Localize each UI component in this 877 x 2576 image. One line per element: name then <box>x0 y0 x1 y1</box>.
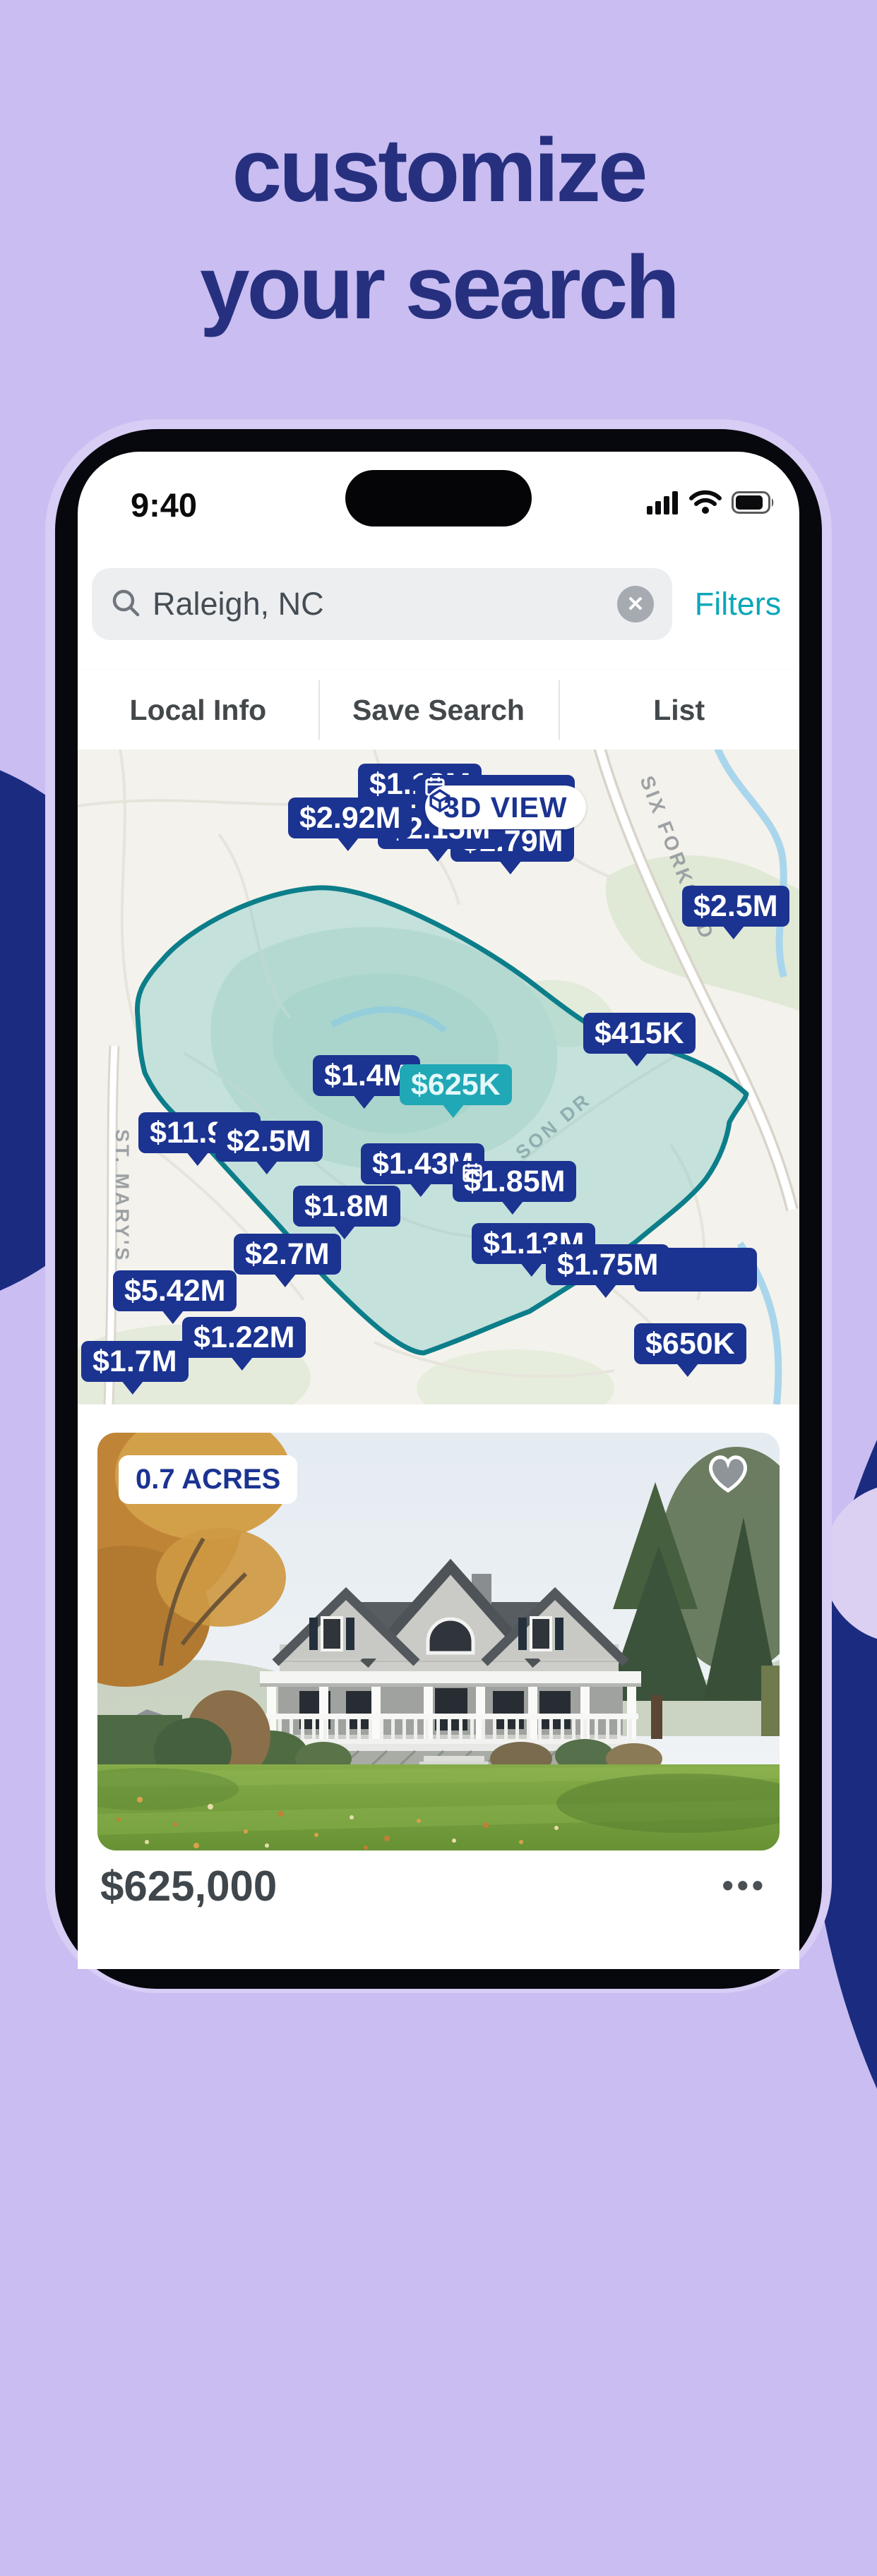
pin-price-label: $2.7M <box>245 1237 330 1272</box>
price-pin[interactable]: $1.7M <box>81 1341 189 1382</box>
pin-price-label: $1.4M <box>324 1059 409 1093</box>
price-pin[interactable]: $2.5M <box>682 886 789 927</box>
pin-price-label: $1.75M <box>557 1248 658 1282</box>
pin-price-label: $415K <box>595 1016 684 1051</box>
search-query-text: Raleigh, NC <box>153 586 617 622</box>
listing-card-photo[interactable]: 0.7 ACRES <box>97 1433 780 1850</box>
clear-search-button[interactable]: ✕ <box>617 586 654 622</box>
status-bar: 9:40 <box>78 452 799 543</box>
favorite-heart-icon[interactable] <box>705 1451 751 1498</box>
search-row: Raleigh, NC ✕ Filters <box>78 565 799 649</box>
phone-screen: 9:40 Raleigh, NC ✕ Filters Local InfoSav… <box>78 452 799 1969</box>
pin-price-label: $5.42M <box>124 1274 225 1308</box>
wifi-icon <box>688 490 722 519</box>
tab-list[interactable]: List <box>559 670 799 750</box>
app-store-screenshot: { "hero": { "title_line1": "customize", … <box>0 0 877 1897</box>
price-pin[interactable]: $1.22M <box>182 1317 306 1358</box>
acres-badge: 0.7 ACRES <box>119 1455 297 1504</box>
search-icon <box>110 587 141 622</box>
listing-price: $625,000 <box>100 1862 277 1910</box>
status-time: 9:40 <box>114 486 213 524</box>
price-pin[interactable]: $2.7M <box>234 1234 341 1275</box>
pin-price-label: $1.8M <box>304 1189 389 1224</box>
map-view[interactable]: SIX FORKS RD ST. MARY'S ST SON DR $1.18M… <box>78 750 799 1404</box>
signal-icon <box>647 490 679 518</box>
pin-price-label: $2.5M <box>227 1124 311 1159</box>
pin-price-label: $2.5M <box>693 889 778 924</box>
filters-button[interactable]: Filters <box>682 568 794 640</box>
pin-price-label: $1.7M <box>93 1344 177 1379</box>
search-input[interactable]: Raleigh, NC ✕ <box>92 568 672 640</box>
pin-price-label: $650K <box>645 1327 735 1361</box>
hero-title-line2: your search <box>0 243 877 332</box>
pin-price-label: $1.22M <box>193 1320 294 1355</box>
hero-title-line1: customize <box>0 126 877 215</box>
3d-cube-icon <box>425 786 455 815</box>
tab-local-info[interactable]: Local Info <box>78 670 318 750</box>
map-toolbar-tabs: Local InfoSave SearchList <box>78 670 799 750</box>
dynamic-island <box>345 470 532 526</box>
price-pin[interactable]: $415K <box>583 1013 696 1054</box>
price-pin[interactable]: $5.42M <box>113 1270 237 1311</box>
3d-view-label: 3D VIEW <box>443 791 568 824</box>
price-pin-selected[interactable]: $625K <box>400 1064 512 1105</box>
open-house-calendar-icon <box>461 1161 484 1184</box>
price-pin[interactable]: $2.5M <box>215 1121 323 1162</box>
status-icons <box>647 490 775 519</box>
tab-save-search[interactable]: Save Search <box>318 670 559 750</box>
price-pin[interactable]: $1.85M <box>453 1161 576 1202</box>
pin-price-label: $625K <box>411 1068 501 1102</box>
price-pin[interactable]: $650K <box>634 1323 746 1364</box>
pin-price-label: $2.92M <box>299 801 400 836</box>
battery-icon <box>732 491 775 517</box>
more-options-button[interactable]: ••• <box>722 1866 767 1904</box>
3d-view-button[interactable]: 3D VIEW <box>425 786 586 829</box>
price-pin[interactable]: $2.92M <box>288 798 412 838</box>
price-pin[interactable]: $1.8M <box>293 1186 400 1227</box>
listing-price-row: $625,000 ••• <box>78 1858 799 1942</box>
price-pin[interactable]: $1.75M <box>546 1244 669 1285</box>
